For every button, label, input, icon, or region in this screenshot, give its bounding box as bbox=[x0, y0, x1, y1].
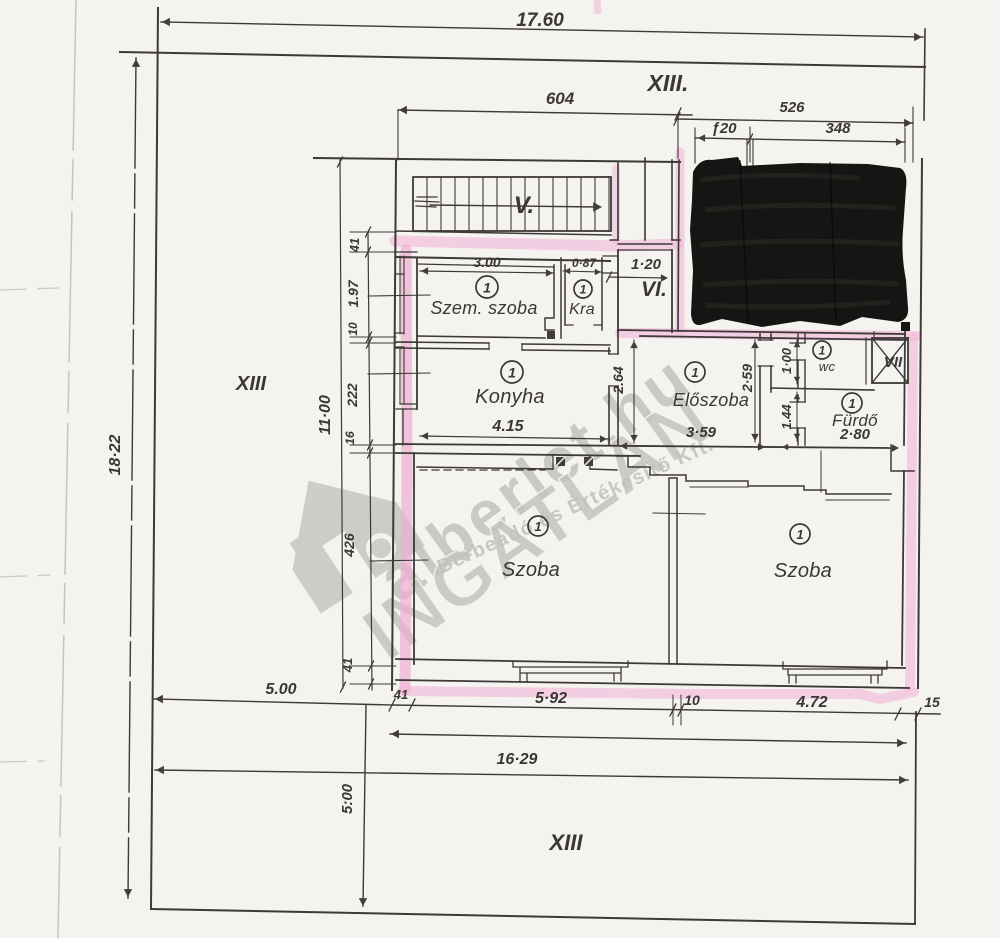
svg-text:18·22: 18·22 bbox=[107, 434, 124, 475]
svg-text:2·80: 2·80 bbox=[839, 426, 871, 443]
svg-text:11·00: 11·00 bbox=[317, 395, 334, 435]
svg-text:VI.: VI. bbox=[641, 278, 667, 301]
svg-text:V.: V. bbox=[514, 192, 534, 219]
svg-text:1.44: 1.44 bbox=[779, 404, 794, 430]
svg-text:604: 604 bbox=[546, 89, 575, 108]
svg-text:0·87: 0·87 bbox=[572, 256, 597, 270]
svg-text:1: 1 bbox=[483, 279, 491, 295]
svg-text:3.00: 3.00 bbox=[473, 254, 500, 270]
svg-text:1: 1 bbox=[691, 365, 698, 380]
svg-text:wc: wc bbox=[819, 359, 836, 374]
svg-text:1: 1 bbox=[508, 364, 516, 380]
svg-text:15: 15 bbox=[924, 694, 940, 710]
svg-text:XIII: XIII bbox=[547, 830, 583, 855]
svg-text:VII: VII bbox=[884, 354, 903, 371]
svg-text:1: 1 bbox=[580, 282, 587, 296]
svg-text:Előszoba: Előszoba bbox=[673, 390, 749, 410]
svg-text:1·00: 1·00 bbox=[779, 347, 794, 374]
svg-text:526: 526 bbox=[779, 99, 805, 116]
svg-text:41: 41 bbox=[340, 658, 355, 673]
svg-text:Szoba: Szoba bbox=[502, 559, 560, 581]
svg-text:3·59: 3·59 bbox=[686, 424, 717, 441]
svg-text:Konyha: Konyha bbox=[475, 386, 545, 408]
svg-text:Szoba: Szoba bbox=[774, 560, 832, 582]
svg-text:16: 16 bbox=[343, 431, 357, 445]
svg-text:17.60: 17.60 bbox=[516, 10, 564, 31]
svg-text:1: 1 bbox=[534, 519, 541, 534]
svg-text:4.72: 4.72 bbox=[795, 694, 827, 711]
svg-text:1: 1 bbox=[848, 396, 855, 411]
svg-text:Kra: Kra bbox=[569, 301, 595, 318]
svg-text:10: 10 bbox=[684, 692, 700, 708]
svg-text:XIII: XIII bbox=[235, 373, 266, 395]
svg-text:222: 222 bbox=[344, 383, 360, 408]
svg-text:348: 348 bbox=[825, 120, 851, 137]
svg-text:ƒ20: ƒ20 bbox=[711, 120, 737, 137]
svg-text:Szem. szoba: Szem. szoba bbox=[430, 298, 537, 318]
svg-text:2.64: 2.64 bbox=[610, 366, 626, 394]
svg-text:41: 41 bbox=[393, 687, 408, 702]
svg-text:1·20: 1·20 bbox=[631, 256, 662, 273]
svg-text:5:00: 5:00 bbox=[339, 783, 356, 814]
svg-text:1: 1 bbox=[819, 343, 826, 357]
svg-text:5.00: 5.00 bbox=[265, 681, 296, 698]
svg-text:2·59: 2·59 bbox=[739, 364, 755, 393]
svg-text:1: 1 bbox=[796, 527, 803, 542]
svg-text:16·29: 16·29 bbox=[497, 751, 538, 768]
svg-text:1.97: 1.97 bbox=[345, 279, 361, 307]
svg-text:10: 10 bbox=[346, 322, 360, 336]
svg-text:41: 41 bbox=[347, 238, 362, 253]
svg-text:426: 426 bbox=[341, 533, 357, 558]
svg-text:XIII.: XIII. bbox=[646, 70, 689, 96]
svg-text:4.15: 4.15 bbox=[491, 418, 524, 435]
svg-text:5·92: 5·92 bbox=[535, 690, 567, 707]
